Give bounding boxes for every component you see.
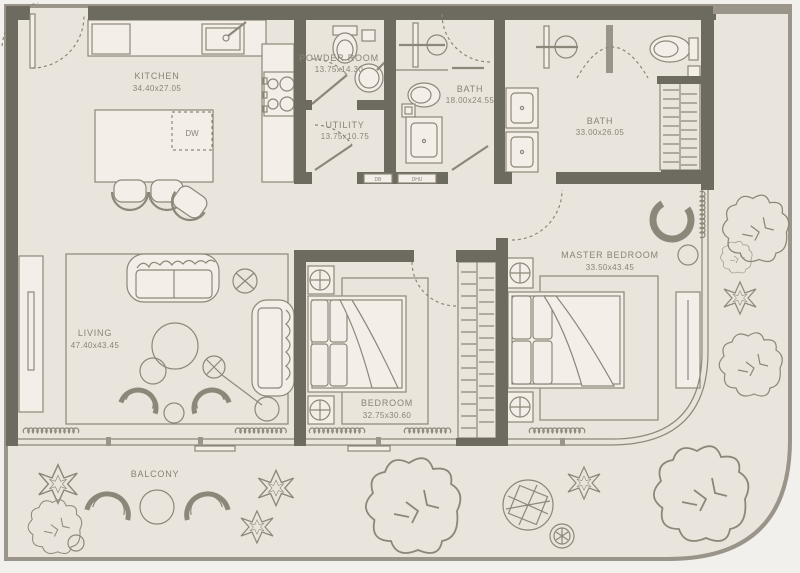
bedroom-nightstand-top: [308, 266, 334, 294]
living-label: LIVING: [78, 328, 112, 338]
tv-console: [19, 256, 43, 412]
powder-shelf: [362, 30, 375, 41]
living-dims: 47.40x43.45: [71, 341, 120, 350]
balcony-label: BALCONY: [131, 469, 180, 479]
kitchen-dims: 34.40x27.05: [133, 84, 182, 93]
terrace-top-wall: [713, 6, 790, 14]
powder-room-dims: 13.75x14.30: [315, 65, 364, 74]
master-nightstand-bottom: [506, 392, 533, 422]
master-bedroom-label: MASTER BEDROOM: [561, 250, 659, 260]
plant-pot: [550, 524, 574, 548]
sofa: [127, 254, 219, 302]
kitchen-counter-top: [88, 20, 266, 56]
site-boundary: [6, 6, 790, 559]
bedroom-dims: 32.75x30.60: [363, 411, 412, 420]
service-panels: DB DHU: [364, 174, 436, 183]
utility-label: UTILITY: [325, 120, 364, 130]
master-bedroom-dims: 33.50x43.45: [586, 263, 635, 272]
master-bed: [508, 292, 624, 388]
bedroom-nightstand-bottom: [308, 396, 334, 424]
master-nightstand-top: [506, 258, 533, 288]
bath-label: BATH: [457, 84, 484, 94]
floor-plan: DW: [0, 0, 800, 573]
armchair: [252, 300, 294, 396]
master-console: [676, 292, 700, 388]
floor-plan-page: DW: [0, 0, 800, 573]
bath-dims: 18.00x24.55: [446, 96, 495, 105]
kitchen-island: DW: [95, 110, 213, 182]
bedroom-label: BEDROOM: [361, 398, 413, 408]
powder-room-label: POWDER ROOM: [299, 53, 379, 63]
master-bath-label: BATH: [587, 116, 614, 126]
bath1-vanity: [406, 117, 442, 163]
dishwasher-label: DW: [185, 129, 199, 138]
kitchen-counter-right: [262, 44, 294, 182]
utility-dims: 13.75x10.75: [321, 132, 370, 141]
dhu-label: DHU: [412, 177, 423, 183]
kitchen-label: KITCHEN: [134, 71, 179, 81]
db-label: DB: [375, 177, 383, 183]
bedroom-bed: [308, 296, 406, 392]
master-bath-dims: 33.00x26.05: [576, 128, 625, 137]
